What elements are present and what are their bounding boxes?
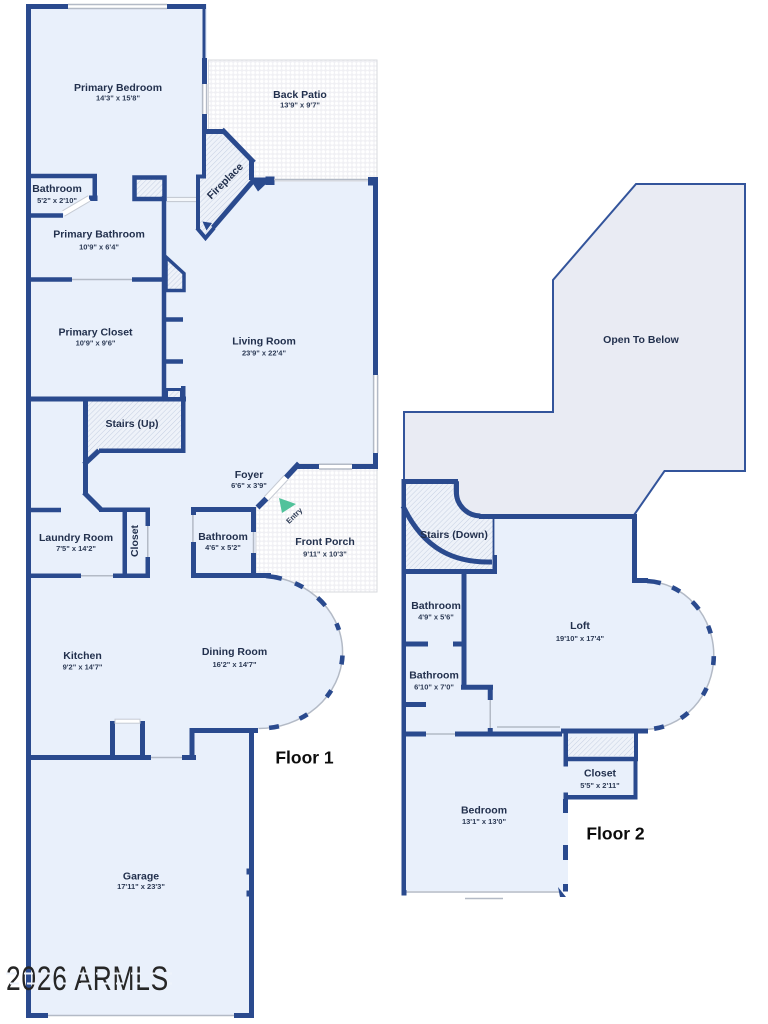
svg-text:10'9" x 9'6": 10'9" x 9'6" (76, 339, 116, 348)
svg-text:Living Room: Living Room (232, 336, 296, 348)
svg-text:Primary Bedroom: Primary Bedroom (74, 82, 162, 94)
svg-text:16'2" x 14'7": 16'2" x 14'7" (212, 660, 256, 669)
svg-text:13'9" x 9'7": 13'9" x 9'7" (280, 101, 320, 110)
svg-text:Primary Closet: Primary Closet (58, 327, 133, 339)
svg-text:14'3" x 15'8": 14'3" x 15'8" (96, 94, 140, 103)
svg-text:Bathroom: Bathroom (409, 670, 459, 682)
svg-text:Bathroom: Bathroom (411, 600, 461, 612)
svg-text:2026 ARMLS: 2026 ARMLS (6, 960, 169, 998)
svg-text:Primary Bathroom: Primary Bathroom (53, 229, 145, 241)
svg-text:Bathroom: Bathroom (32, 183, 82, 195)
svg-text:Bathroom: Bathroom (198, 531, 248, 543)
svg-text:Floor 2: Floor 2 (586, 824, 645, 844)
svg-text:5'2" x 2'10": 5'2" x 2'10" (37, 196, 77, 205)
svg-text:Kitchen: Kitchen (63, 650, 102, 662)
svg-text:5'5" x 2'11": 5'5" x 2'11" (580, 781, 620, 790)
svg-text:9'11" x 10'3": 9'11" x 10'3" (303, 550, 347, 559)
svg-text:Closet: Closet (584, 768, 617, 780)
svg-text:Foyer: Foyer (235, 469, 264, 481)
svg-text:9'2" x 14'7": 9'2" x 14'7" (63, 663, 103, 672)
svg-text:Back Patio: Back Patio (273, 89, 327, 101)
svg-text:Stairs (Down): Stairs (Down) (420, 529, 488, 541)
svg-text:4'9" x 5'6": 4'9" x 5'6" (418, 613, 454, 622)
svg-text:23'9" x 22'4": 23'9" x 22'4" (242, 349, 286, 358)
svg-text:17'11" x 23'3": 17'11" x 23'3" (117, 882, 165, 891)
svg-text:Floor 1: Floor 1 (275, 748, 334, 768)
svg-text:19'10" x 17'4": 19'10" x 17'4" (556, 634, 605, 643)
svg-text:Loft: Loft (570, 620, 590, 632)
svg-text:Laundry Room: Laundry Room (39, 532, 113, 544)
svg-text:7'5" x 14'2": 7'5" x 14'2" (56, 544, 96, 553)
svg-text:Closet: Closet (129, 524, 141, 557)
svg-text:6'6" x 3'9": 6'6" x 3'9" (231, 481, 267, 490)
svg-text:Stairs (Up): Stairs (Up) (105, 418, 158, 430)
svg-text:Front Porch: Front Porch (295, 536, 355, 548)
svg-text:6'10" x 7'0": 6'10" x 7'0" (414, 683, 454, 692)
svg-text:Garage: Garage (123, 871, 159, 883)
svg-text:10'9" x 6'4": 10'9" x 6'4" (79, 243, 119, 252)
svg-text:Dining Room: Dining Room (202, 646, 267, 658)
svg-text:Bedroom: Bedroom (461, 805, 507, 817)
svg-text:Open To Below: Open To Below (603, 334, 679, 346)
svg-text:4'6" x 5'2": 4'6" x 5'2" (205, 543, 241, 552)
svg-text:13'1" x 13'0": 13'1" x 13'0" (462, 817, 506, 826)
